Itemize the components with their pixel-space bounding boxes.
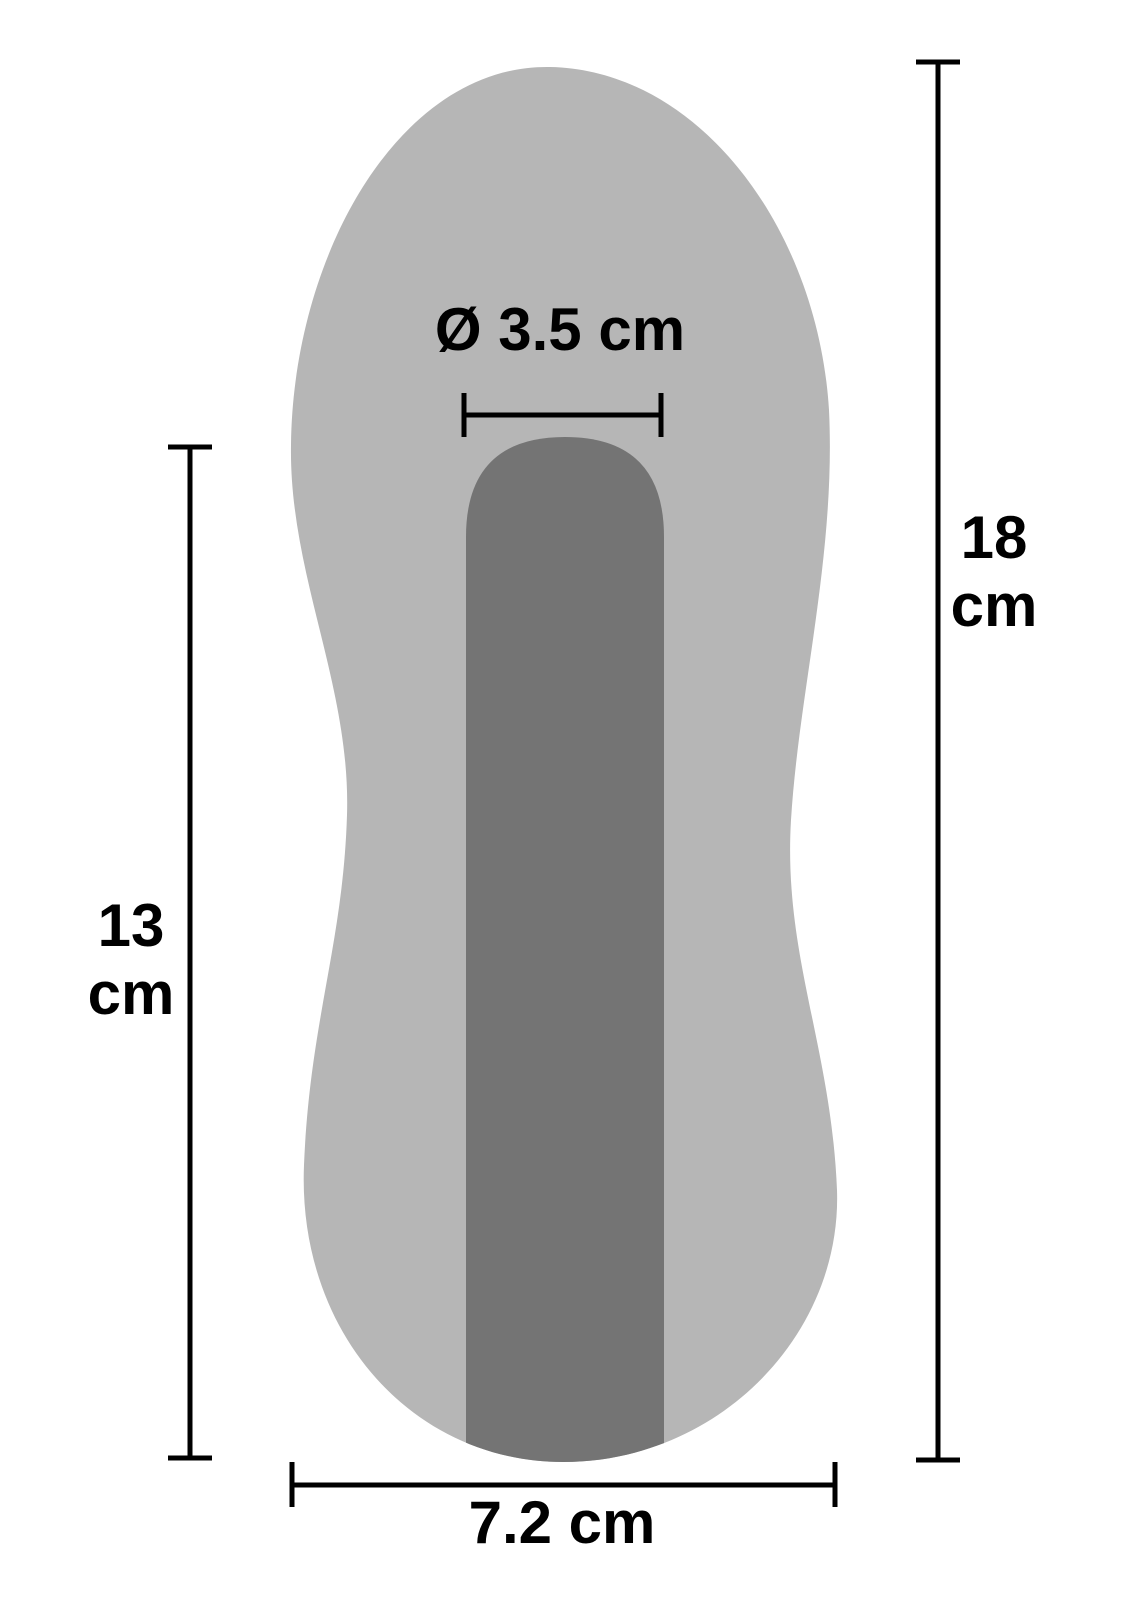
product-dimension-diagram: Ø 3.5 cm 18 cm 13 cm 7.2 cm — [0, 0, 1129, 1600]
inner-diameter-label: Ø 3.5 cm — [410, 296, 710, 364]
total-length-dimension-line — [916, 62, 960, 1460]
total-length-unit: cm — [924, 572, 1064, 640]
inner-depth-label: 13 cm — [61, 892, 201, 1028]
inner-depth-value: 13 — [61, 892, 201, 960]
inner-channel — [466, 437, 664, 1600]
total-length-value: 18 — [924, 504, 1064, 572]
total-length-label: 18 cm — [924, 504, 1064, 640]
inner-depth-unit: cm — [61, 960, 201, 1028]
width-label: 7.2 cm — [412, 1489, 712, 1557]
diagram-graphics — [0, 0, 1129, 1600]
